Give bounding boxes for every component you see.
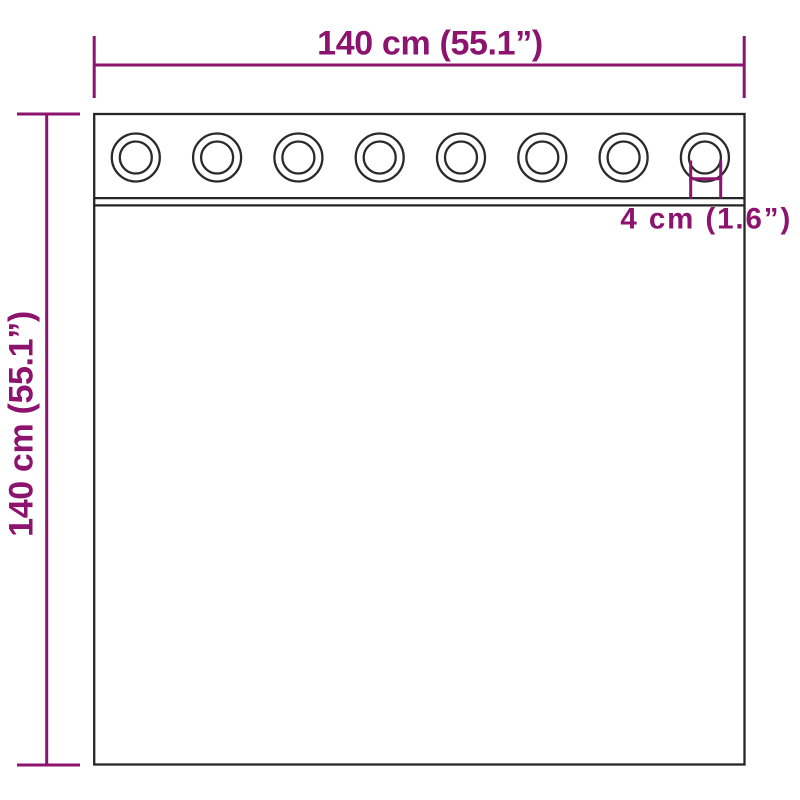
- svg-text:4 cm (1.6”): 4 cm (1.6”): [620, 202, 792, 235]
- svg-text:140 cm (55.1”): 140 cm (55.1”): [317, 25, 543, 63]
- svg-text:140 cm (55.1”): 140 cm (55.1”): [3, 311, 41, 537]
